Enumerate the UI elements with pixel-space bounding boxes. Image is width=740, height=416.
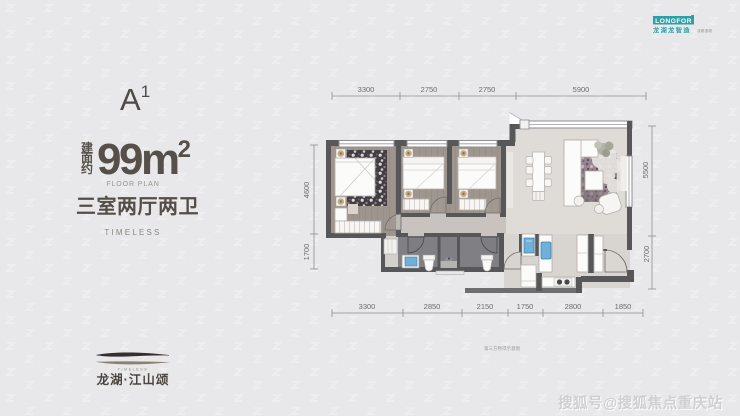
svg-text:2750: 2750	[479, 85, 496, 94]
svg-text:2700: 2700	[642, 246, 651, 263]
svg-text:2850: 2850	[424, 302, 441, 311]
svg-text:1850: 1850	[615, 302, 632, 311]
svg-text:3300: 3300	[359, 302, 376, 311]
svg-text:3300: 3300	[358, 85, 375, 94]
svg-text:2800: 2800	[565, 302, 582, 311]
svg-text:第三方物得示意图: 第三方物得示意图	[484, 345, 520, 352]
svg-text:4600: 4600	[302, 182, 311, 199]
svg-text:2750: 2750	[421, 85, 438, 94]
svg-text:1700: 1700	[302, 244, 311, 261]
svg-text:1750: 1750	[517, 302, 534, 311]
svg-text:5500: 5500	[641, 162, 650, 179]
svg-text:2150: 2150	[477, 302, 494, 311]
svg-text:5900: 5900	[573, 85, 590, 94]
